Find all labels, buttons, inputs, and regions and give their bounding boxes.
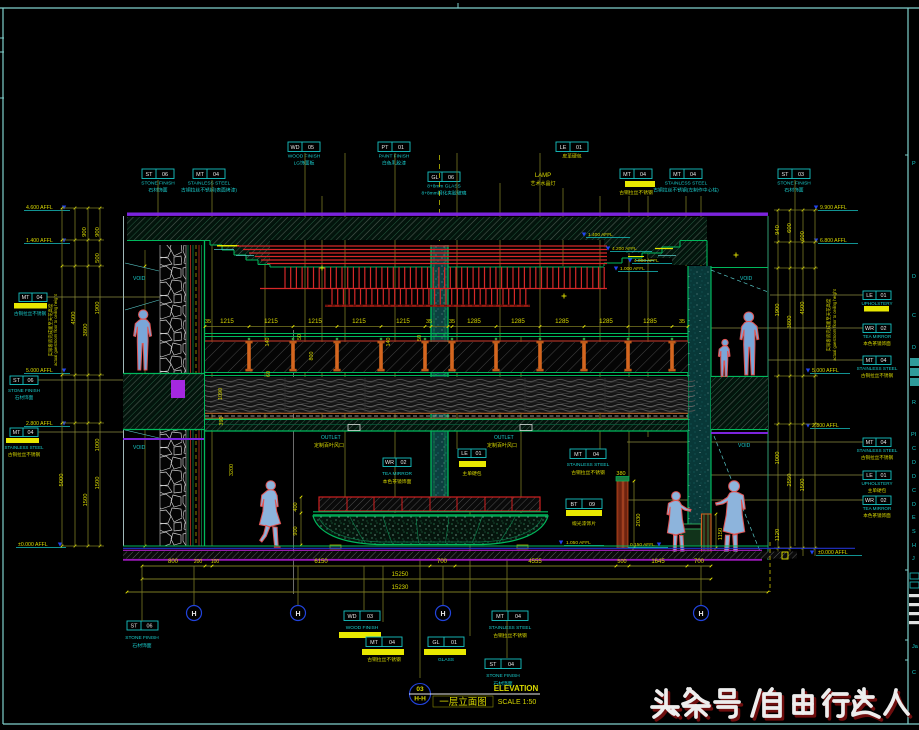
svg-text:actual guestroom floor to ceil: actual guestroom floor to ceiling height: [832, 288, 837, 361]
svg-text:8+8mm GLASS: 8+8mm GLASS: [427, 184, 460, 190]
svg-text:古铜拉丝不锈钢: 古铜拉丝不锈钢: [493, 632, 527, 639]
svg-text:04: 04: [640, 172, 646, 178]
svg-text:GL: GL: [432, 640, 439, 646]
svg-text:STONE FINISH: STONE FINISH: [486, 673, 520, 679]
svg-text:LE: LE: [866, 473, 873, 479]
svg-text:D: D: [912, 502, 916, 508]
svg-text:STAINLESS STEEL: STAINLESS STEEL: [188, 181, 231, 187]
svg-text:4.600 AFFL: 4.600 AFFL: [26, 205, 53, 211]
svg-text:4.200 AFFL: 4.200 AFFL: [612, 246, 637, 252]
svg-text:H-H: H-H: [414, 696, 426, 703]
svg-text:1285: 1285: [511, 318, 525, 325]
svg-text:H: H: [191, 611, 196, 618]
svg-text:古铜拉丝不锈钢: 古铜拉丝不锈钢: [8, 451, 41, 458]
svg-text:1285: 1285: [643, 318, 657, 325]
svg-text:Ja: Ja: [912, 644, 919, 650]
svg-text:15230: 15230: [392, 585, 409, 591]
svg-text:1285: 1285: [467, 318, 481, 325]
svg-text:MT: MT: [22, 295, 30, 301]
svg-text:C: C: [912, 313, 916, 319]
svg-text:STAINLESS STEEL: STAINLESS STEEL: [567, 462, 610, 468]
svg-text:古铜拉丝不锈钢: 古铜拉丝不锈钢: [861, 372, 894, 379]
svg-text:C: C: [912, 670, 916, 676]
svg-text:900: 900: [95, 227, 101, 237]
svg-text:04: 04: [389, 640, 395, 646]
svg-text:200: 200: [194, 559, 203, 565]
svg-text:02: 02: [881, 498, 887, 504]
svg-text:8+8mm钢化夹胶玻璃: 8+8mm钢化夹胶玻璃: [422, 190, 467, 197]
svg-text:H: H: [912, 543, 916, 549]
svg-text:MT: MT: [496, 614, 504, 620]
svg-text:H: H: [440, 611, 445, 618]
svg-text:STONE FINISH: STONE FINISH: [8, 388, 40, 393]
svg-text:5000: 5000: [59, 474, 65, 487]
svg-text:ST: ST: [782, 172, 790, 178]
svg-text:1645: 1645: [651, 559, 665, 565]
svg-text:C: C: [912, 446, 916, 452]
svg-text:1900: 1900: [95, 302, 101, 315]
svg-text:02: 02: [401, 460, 407, 466]
svg-text:STAINLESS STEEL: STAINLESS STEEL: [489, 625, 532, 631]
svg-text:C: C: [912, 488, 916, 494]
svg-text:140: 140: [386, 338, 392, 347]
svg-text:古铜拉丝不锈钢: 古铜拉丝不锈钢: [619, 189, 653, 196]
svg-text:5.000 AFFL: 5.000 AFFL: [812, 368, 839, 374]
svg-text:OUTLET: OUTLET: [321, 435, 341, 441]
svg-text:OUTLET: OUTLET: [494, 435, 514, 441]
svg-text:3800: 3800: [787, 316, 793, 329]
svg-text:VOID: VOID: [740, 276, 753, 282]
svg-text:VOID: VOID: [133, 276, 146, 282]
svg-text:5.000 AFFL: 5.000 AFFL: [26, 368, 53, 374]
svg-text:1215: 1215: [396, 318, 410, 325]
svg-text:390: 390: [219, 417, 225, 426]
svg-text:03: 03: [416, 686, 424, 693]
svg-text:古铜拉丝不锈钢: 古铜拉丝不锈钢: [14, 310, 47, 317]
svg-text:700: 700: [694, 559, 705, 565]
svg-text:400: 400: [293, 502, 299, 511]
svg-text:04: 04: [881, 358, 887, 364]
svg-text:100: 100: [211, 559, 220, 565]
svg-text:缎光漆饰片: 缎光漆饰片: [572, 520, 596, 527]
svg-text:MT: MT: [623, 172, 631, 178]
svg-text:H: H: [295, 611, 300, 618]
svg-text:PAINT FINISH: PAINT FINISH: [379, 154, 410, 160]
svg-text:WD: WD: [291, 145, 300, 151]
svg-text:1.050 AFFL: 1.050 AFFL: [566, 540, 591, 546]
svg-text:古铜拉丝不锈钢(表面烤漆): 古铜拉丝不锈钢(表面烤漆): [181, 187, 237, 194]
svg-text:WD: WD: [348, 614, 357, 620]
svg-text:VOID: VOID: [738, 443, 751, 449]
svg-text:01: 01: [881, 293, 887, 299]
svg-text:R: R: [912, 400, 916, 406]
svg-text:1000: 1000: [775, 452, 781, 465]
svg-text:1.000 AFFL: 1.000 AFFL: [620, 266, 645, 272]
svg-text:WR: WR: [385, 460, 394, 466]
svg-text:TEA MIRROR: TEA MIRROR: [863, 334, 892, 339]
svg-text:TEA MIRROR: TEA MIRROR: [382, 471, 412, 477]
svg-text:MT: MT: [866, 358, 874, 364]
svg-text:1.400 AFFL: 1.400 AFFL: [26, 238, 53, 244]
svg-text:9.900 AFFL: 9.900 AFFL: [820, 205, 847, 211]
svg-text:定制百叶风口: 定制百叶风口: [314, 442, 344, 449]
svg-text:±0.000 AFFL: ±0.000 AFFL: [818, 550, 848, 556]
svg-text:500: 500: [617, 559, 626, 565]
svg-text:04: 04: [213, 172, 219, 178]
svg-text:35: 35: [449, 319, 455, 325]
svg-text:04: 04: [515, 614, 521, 620]
svg-text:3200: 3200: [229, 464, 235, 476]
svg-text:1285: 1285: [599, 318, 613, 325]
svg-text:WOOD FINISH: WOOD FINISH: [346, 625, 379, 631]
svg-text:03: 03: [367, 614, 373, 620]
svg-text:MT: MT: [673, 172, 681, 178]
svg-text:6150: 6150: [314, 559, 328, 565]
svg-text:本色茶镜饰面: 本色茶镜饰面: [863, 512, 891, 519]
svg-text:04: 04: [28, 430, 34, 436]
svg-text:05: 05: [308, 145, 314, 151]
svg-text:06: 06: [28, 378, 34, 384]
svg-text:本色茶镜饰面: 本色茶镜饰面: [863, 340, 891, 347]
svg-text:GLASS: GLASS: [438, 657, 454, 663]
svg-text:2030: 2030: [636, 514, 642, 527]
svg-text:主单硬包: 主单硬包: [868, 487, 887, 494]
svg-text:实际客房完成面至天花高度: 实际客房完成面至天花高度: [825, 298, 832, 351]
svg-text:900: 900: [82, 227, 88, 237]
svg-text:940: 940: [775, 225, 781, 235]
svg-text:MT: MT: [370, 640, 378, 646]
svg-text:06: 06: [448, 175, 454, 181]
svg-text:古铜拉丝不锈钢(左制作中心柱): 古铜拉丝不锈钢(左制作中心柱): [653, 187, 719, 194]
svg-text:2550: 2550: [787, 474, 793, 487]
svg-text:01: 01: [451, 640, 457, 646]
svg-text:1215: 1215: [308, 318, 322, 325]
svg-text:D: D: [912, 460, 916, 466]
svg-text:ST: ST: [13, 378, 21, 384]
svg-text:S: S: [912, 529, 916, 535]
svg-text:STAINLESS STEEL: STAINLESS STEEL: [857, 366, 898, 371]
svg-text:1090: 1090: [218, 388, 224, 400]
svg-text:700: 700: [437, 559, 448, 565]
svg-text:4500: 4500: [800, 302, 806, 315]
svg-text:古铜拉丝不锈钢: 古铜拉丝不锈钢: [367, 656, 401, 663]
svg-text:06: 06: [162, 172, 168, 178]
svg-text:50: 50: [417, 335, 423, 341]
svg-text:ELEVATION: ELEVATION: [494, 684, 539, 693]
svg-text:60: 60: [266, 371, 272, 377]
svg-text:6.800 AFFL: 6.800 AFFL: [820, 238, 847, 244]
svg-text:主单硬包: 主单硬包: [462, 470, 481, 477]
svg-text:ST: ST: [131, 624, 139, 630]
svg-text:1120: 1120: [775, 529, 781, 541]
svg-text:WOOD FINISH: WOOD FINISH: [288, 154, 321, 160]
svg-text:1000: 1000: [95, 439, 101, 452]
svg-text:1500: 1500: [800, 479, 806, 492]
svg-text:LE: LE: [866, 293, 873, 299]
svg-text:04: 04: [690, 172, 696, 178]
svg-text:LG饰面板: LG饰面板: [294, 160, 315, 167]
svg-text:ST: ST: [490, 662, 498, 668]
svg-text:STAINLESS STEEL: STAINLESS STEEL: [5, 445, 45, 450]
svg-text:白色乳胶漆: 白色乳胶漆: [382, 160, 406, 167]
svg-text:D: D: [912, 345, 916, 351]
svg-text:STONE FINISH: STONE FINISH: [777, 181, 811, 187]
svg-text:900: 900: [293, 526, 299, 535]
svg-text:WR: WR: [865, 498, 874, 504]
svg-text:GL: GL: [431, 175, 438, 181]
svg-text:1.400 AFFL: 1.400 AFFL: [588, 232, 613, 238]
svg-text:09: 09: [589, 502, 595, 508]
svg-text:actual guestroom floor to ceil: actual guestroom floor to ceiling height: [53, 293, 58, 366]
svg-text:MT: MT: [13, 430, 21, 436]
svg-text:石材饰面: 石材饰面: [132, 642, 151, 649]
svg-text:古铜拉丝不锈钢: 古铜拉丝不锈钢: [861, 454, 894, 461]
svg-text:PI: PI: [911, 432, 917, 438]
svg-text:1500: 1500: [95, 477, 101, 490]
svg-text:LE: LE: [560, 145, 567, 151]
svg-text:MT: MT: [866, 440, 874, 446]
svg-text:H: H: [698, 611, 703, 618]
svg-text:LE: LE: [461, 451, 468, 457]
svg-text:STONE FINISH: STONE FINISH: [125, 635, 159, 641]
svg-text:TEA MIRROR: TEA MIRROR: [863, 506, 892, 511]
svg-text:04: 04: [593, 452, 599, 458]
svg-text:01: 01: [476, 451, 482, 457]
svg-text:35: 35: [679, 319, 685, 325]
svg-text:0.150 AFFL: 0.150 AFFL: [630, 542, 655, 548]
svg-text:380: 380: [616, 471, 625, 477]
svg-text:BT: BT: [571, 502, 579, 508]
svg-text:±0.000 AFFL: ±0.000 AFFL: [18, 542, 48, 548]
svg-text:SCALE 1:50: SCALE 1:50: [498, 699, 537, 706]
svg-text:06: 06: [147, 624, 153, 630]
svg-text:P: P: [912, 161, 916, 167]
svg-text:UPHOLSTERY: UPHOLSTERY: [861, 301, 892, 306]
svg-text:D: D: [912, 474, 916, 480]
svg-text:4555: 4555: [528, 559, 542, 565]
svg-text:04: 04: [881, 440, 887, 446]
svg-text:古铜拉丝不锈钢: 古铜拉丝不锈钢: [571, 469, 605, 476]
svg-text:定制百叶风口: 定制百叶风口: [487, 442, 517, 449]
svg-text:1215: 1215: [220, 318, 234, 325]
svg-text:本色茶镜饰面: 本色茶镜饰面: [383, 478, 412, 485]
svg-text:1500: 1500: [83, 494, 89, 507]
svg-text:PT: PT: [382, 145, 390, 151]
svg-text:皮革硬包: 皮革硬包: [562, 153, 581, 160]
svg-text:35: 35: [205, 319, 211, 325]
svg-text:MT: MT: [196, 172, 204, 178]
svg-text:01: 01: [398, 145, 404, 151]
svg-text:艺术水晶灯: 艺术水晶灯: [530, 180, 555, 187]
svg-text:03: 03: [798, 172, 804, 178]
svg-text:35: 35: [426, 319, 432, 325]
svg-text:02: 02: [881, 326, 887, 332]
svg-text:4500: 4500: [71, 312, 77, 325]
svg-text:1215: 1215: [264, 318, 278, 325]
svg-text:STAINLESS STEEL: STAINLESS STEEL: [665, 181, 708, 187]
svg-text:VOID: VOID: [133, 445, 146, 451]
svg-text:石材饰面: 石材饰面: [15, 394, 34, 401]
svg-text:2.800 AFFL: 2.800 AFFL: [26, 421, 53, 427]
svg-text:01: 01: [881, 473, 887, 479]
svg-text:1900: 1900: [775, 304, 781, 317]
svg-text:LAMP: LAMP: [535, 173, 551, 179]
svg-text:600: 600: [787, 223, 793, 233]
svg-text:ST: ST: [146, 172, 154, 178]
svg-text:01: 01: [576, 145, 582, 151]
svg-text:500: 500: [95, 253, 101, 263]
svg-text:600: 600: [800, 231, 806, 241]
svg-text:MT: MT: [574, 452, 582, 458]
svg-text:D: D: [912, 274, 916, 280]
svg-text:04: 04: [37, 295, 43, 301]
svg-text:1285: 1285: [555, 318, 569, 325]
svg-text:J: J: [912, 556, 915, 562]
svg-text:石材饰面: 石材饰面: [784, 187, 803, 194]
svg-text:UPHOLSTERY: UPHOLSTERY: [861, 481, 892, 486]
svg-text:04: 04: [508, 662, 514, 668]
svg-text:15250: 15250: [392, 572, 409, 578]
svg-text:STAINLESS STEEL: STAINLESS STEEL: [857, 448, 898, 453]
svg-text:50: 50: [297, 334, 303, 340]
svg-text:3800: 3800: [83, 324, 89, 337]
svg-text:一层立面图: 一层立面图: [439, 696, 487, 708]
svg-text:WR: WR: [865, 326, 874, 332]
svg-text:4.000 AFFL: 4.000 AFFL: [634, 258, 659, 264]
svg-text:1215: 1215: [352, 318, 366, 325]
svg-text:800: 800: [309, 352, 315, 361]
svg-text:800: 800: [168, 559, 179, 565]
svg-text:E: E: [912, 515, 916, 521]
svg-text:140: 140: [265, 338, 271, 347]
